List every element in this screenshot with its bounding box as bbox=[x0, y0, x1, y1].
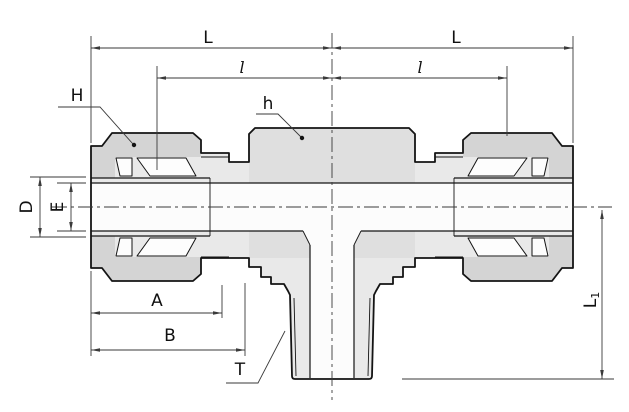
arrow-E-bottom bbox=[69, 222, 73, 231]
dim-label-L-right: L bbox=[451, 28, 461, 48]
leader-H-dot bbox=[132, 143, 136, 147]
dim-label-H: H bbox=[71, 86, 84, 106]
arrow-B-right bbox=[236, 348, 245, 352]
dim-label-L-left: L bbox=[203, 28, 213, 48]
tee-fitting-section-drawing: L L l l H h A B T D E L1 bbox=[0, 0, 629, 412]
dim-label-h: h bbox=[263, 94, 274, 114]
dim-label-L1-sub: 1 bbox=[589, 292, 602, 299]
arrow-l-left-b bbox=[323, 76, 332, 80]
arrow-L-right-a bbox=[332, 46, 341, 50]
dim-label-l-left: l bbox=[239, 58, 244, 77]
dim-label-A: A bbox=[151, 291, 163, 311]
leader-h-dot bbox=[300, 136, 304, 140]
dim-label-D: D bbox=[17, 200, 37, 213]
arrow-D-bottom bbox=[38, 228, 42, 237]
dim-label-E: E bbox=[48, 202, 68, 213]
arrow-L-left-a bbox=[91, 46, 100, 50]
arrow-l-right-a bbox=[332, 76, 341, 80]
arrow-L-left-b bbox=[323, 46, 332, 50]
arrow-E-top bbox=[69, 183, 73, 192]
dim-label-l-right: l bbox=[417, 58, 422, 77]
dim-label-L1: L1 bbox=[581, 292, 602, 308]
arrow-l-right-b bbox=[498, 76, 507, 80]
arrow-B-left bbox=[91, 348, 100, 352]
arrow-L1-bottom bbox=[600, 370, 604, 379]
dim-label-B: B bbox=[164, 326, 176, 346]
arrow-A-left bbox=[91, 311, 100, 315]
arrow-A-right bbox=[213, 311, 222, 315]
arrow-D-top bbox=[38, 177, 42, 186]
dim-label-T: T bbox=[234, 360, 246, 380]
arrow-L-right-b bbox=[564, 46, 573, 50]
arrow-L1-top bbox=[600, 210, 604, 219]
arrow-l-left-a bbox=[157, 76, 166, 80]
technical-drawing-page: L L l l H h A B T D E L1 bbox=[0, 0, 629, 412]
